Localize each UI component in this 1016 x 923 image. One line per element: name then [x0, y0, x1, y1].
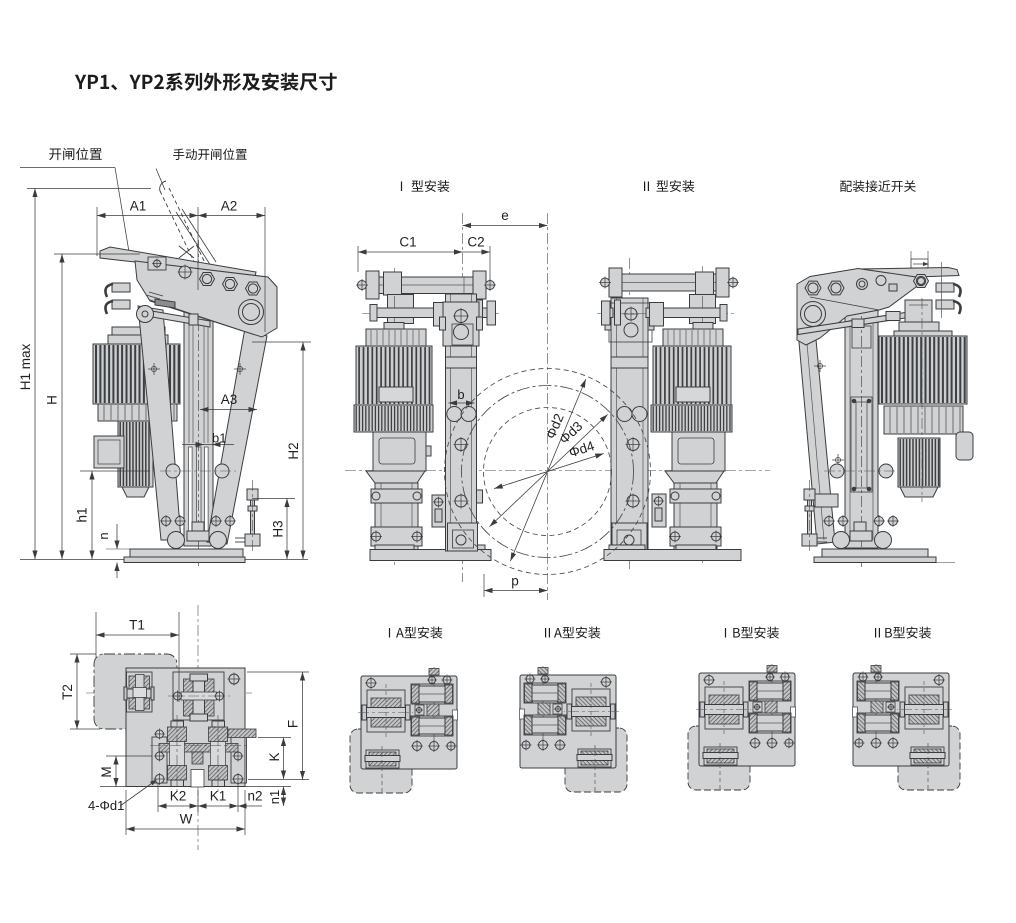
- svg-text:K: K: [267, 752, 282, 761]
- svg-text:b: b: [457, 387, 464, 402]
- svg-text:K1: K1: [210, 789, 227, 804]
- svg-text:n1: n1: [267, 790, 282, 804]
- svg-text:A1: A1: [130, 199, 147, 214]
- svg-text:H1 max: H1 max: [18, 343, 33, 390]
- svg-text:W: W: [180, 812, 193, 827]
- svg-text:e: e: [501, 208, 509, 223]
- svg-text:4-Φd1: 4-Φd1: [88, 798, 124, 813]
- svg-text:F: F: [286, 720, 301, 728]
- svg-text:n: n: [96, 532, 111, 539]
- svg-text:H3: H3: [271, 520, 286, 537]
- svg-text:H2: H2: [286, 442, 301, 459]
- svg-text:A3: A3: [221, 392, 238, 407]
- svg-text:T1: T1: [129, 618, 145, 633]
- svg-text:H: H: [45, 395, 60, 405]
- svg-text:h1: h1: [75, 507, 90, 522]
- svg-text:C2: C2: [467, 235, 484, 250]
- svg-text:M: M: [99, 766, 114, 777]
- svg-text:b1: b1: [212, 431, 226, 446]
- svg-text:p: p: [511, 574, 519, 589]
- svg-text:T2: T2: [60, 684, 75, 700]
- svg-text:K2: K2: [170, 789, 187, 804]
- svg-text:A2: A2: [221, 199, 238, 214]
- svg-text:C1: C1: [399, 235, 416, 250]
- svg-text:n2: n2: [247, 789, 262, 804]
